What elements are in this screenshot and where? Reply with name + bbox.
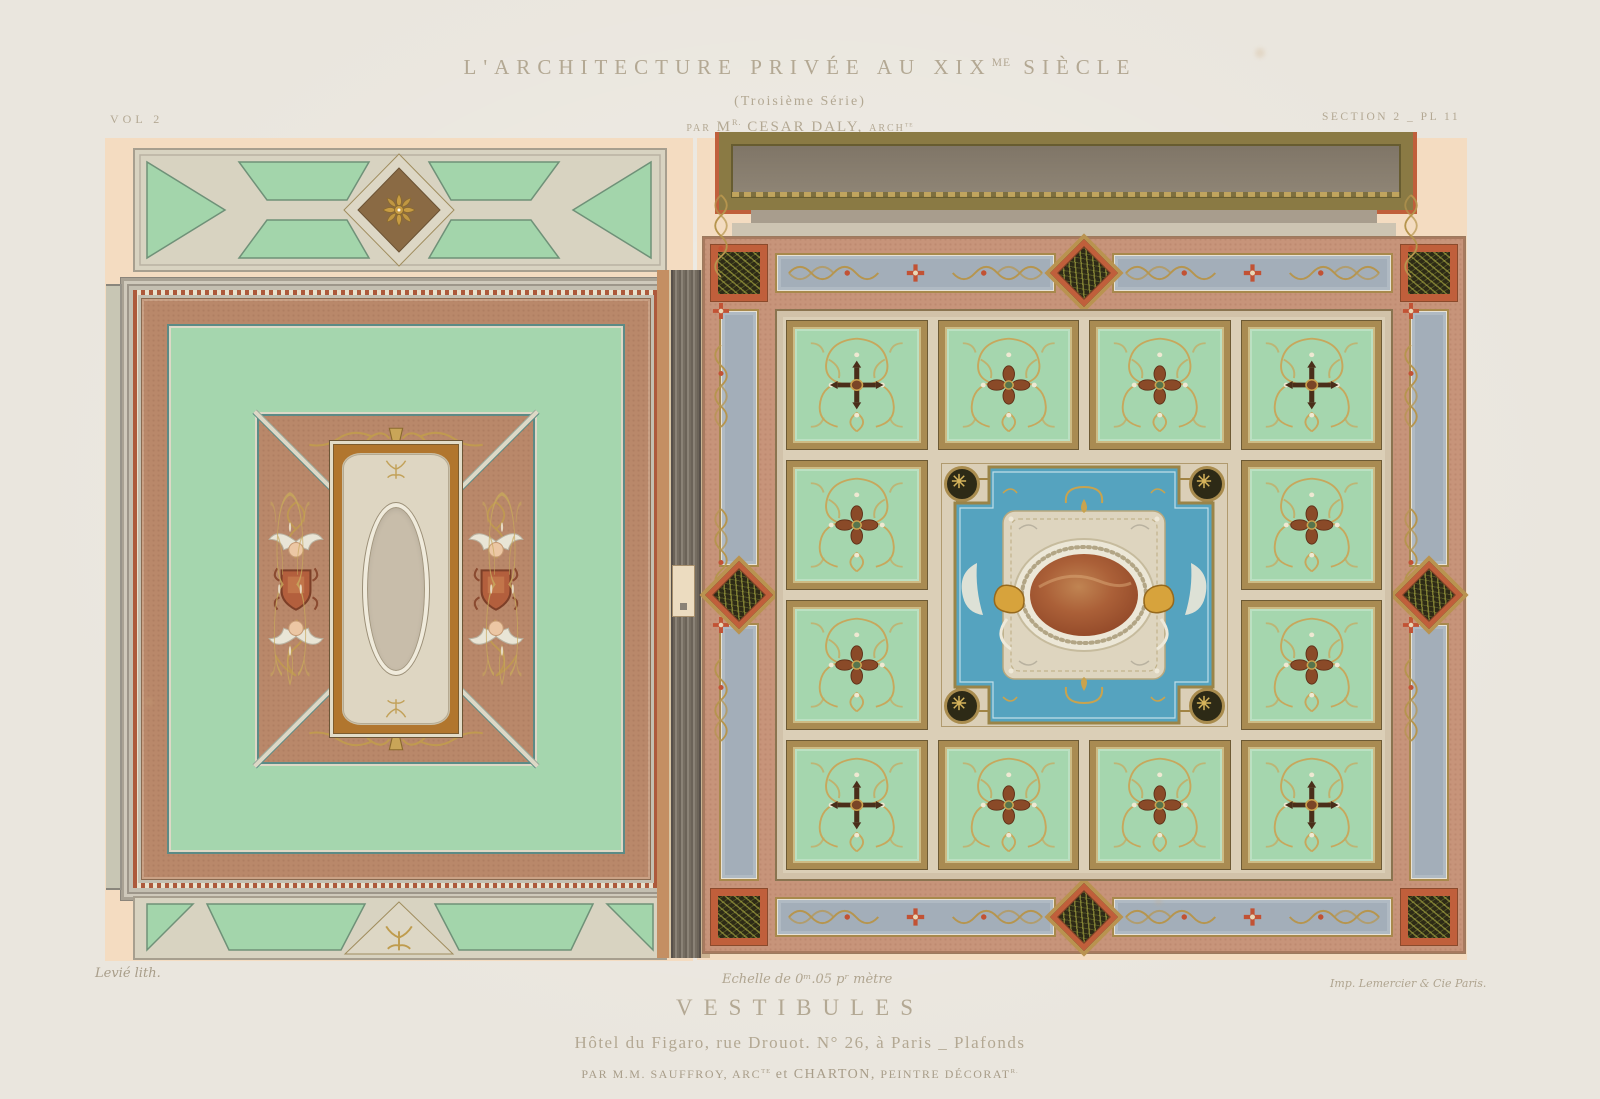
lithographer-credit: Levié lith.: [95, 966, 161, 981]
coffer-cross: [787, 321, 927, 449]
beam-key-block: [673, 566, 694, 616]
left-ceiling-top-strip: [133, 148, 667, 272]
foxing-spot: [1255, 48, 1265, 58]
plate-title-sup: ME: [992, 57, 1011, 69]
right-panel-inner-field: [775, 309, 1393, 881]
band-arabesque-ornament: [779, 257, 1052, 289]
lithograph-plate: VOL 2 L'ARCHITECTURE PRIVÉE AU XIXME SIÈ…: [0, 0, 1600, 1099]
right-ceiling-panel: [703, 237, 1465, 953]
center-medallion: [919, 459, 1249, 731]
coffer-ornament: [1096, 327, 1224, 443]
rosette-icon: [383, 194, 415, 226]
arabesque-band-panel: [1409, 623, 1449, 881]
coffer-ornament: [793, 607, 921, 723]
corner-marble-block: [711, 889, 767, 945]
band-arabesque-ornament: [1116, 901, 1389, 933]
coffer-cross: [787, 741, 927, 869]
left-panel-inner-field: [255, 412, 537, 766]
center-cartouche-panel: [330, 441, 462, 737]
right-ceiling-top-panel: [715, 132, 1417, 214]
coffer-quatrefoil: [939, 741, 1079, 869]
scale-note: Echelle de 0ᵐ.05 pʳ mètre: [722, 972, 892, 987]
credit-arch: ARCTE: [732, 1067, 771, 1081]
coffer-quatrefoil: [1090, 321, 1230, 449]
coffer-cross: [1242, 321, 1382, 449]
border-band-left: [719, 309, 759, 881]
byline-par: PAR: [686, 123, 711, 134]
plate-caption-subtitle: Hôtel du Figaro, rue Drouot. N° 26, à Pa…: [0, 1033, 1600, 1053]
coffer-grid: [787, 321, 1381, 869]
arabesque-band-panel: [775, 897, 1056, 937]
band-arabesque-ornament: [1396, 500, 1426, 750]
coffer-ornament: [793, 467, 921, 583]
gilt-dentil-band: [732, 192, 1400, 197]
section-label: SECTION 2 _ PL 11: [1322, 111, 1460, 123]
coffer-quatrefoil: [787, 601, 927, 729]
border-band-top: [775, 253, 1393, 293]
foxing-spot: [1155, 898, 1162, 905]
cream-cartouche: [343, 454, 449, 724]
plate-subtitle: (Troisième Série): [0, 94, 1600, 110]
arabesque-band-panel: [1112, 897, 1393, 937]
band-arabesque-ornament: [779, 901, 1052, 933]
coffer-ornament: [945, 327, 1073, 443]
left-ceiling-edge-molding: [106, 284, 122, 890]
plate-title-main: L'ARCHITECTURE PRIVÉE AU XIX: [464, 55, 992, 79]
sprig-ornament: [375, 698, 417, 722]
sprig-ornament: [375, 456, 417, 480]
coffer-ornament: [945, 747, 1073, 863]
center-oval-medallion: [363, 503, 429, 675]
plate-title-tail: SIÈCLE: [1011, 55, 1136, 79]
coffer-quatrefoil: [1090, 741, 1230, 869]
coffer-quatrefoil: [939, 321, 1079, 449]
printer-credit: Imp. Lemercier & Cie Paris.: [1330, 977, 1486, 990]
plate-caption-credits: PAR M.M. SAUFFROY, ARCTE et CHARTON, PEI…: [0, 1067, 1600, 1083]
arabesque-band-panel: [1112, 253, 1393, 293]
band-arabesque-ornament: [706, 186, 736, 436]
coffer-quatrefoil: [787, 461, 927, 589]
center-medallion-panel: [941, 463, 1228, 727]
coffer-ornament: [1248, 327, 1376, 443]
coffer-ornament: [793, 327, 921, 443]
gold-foliage-ornament: [263, 470, 317, 708]
foxing-spot: [145, 698, 153, 706]
band-arabesque-ornament: [1116, 257, 1389, 289]
coffer-ornament: [1096, 747, 1224, 863]
arabesque-band-panel: [775, 253, 1056, 293]
coffer-ornament: [1248, 607, 1376, 723]
left-panel-brown-band: [141, 298, 651, 880]
band-diamond: [1050, 239, 1118, 307]
arabesque-band-panel: [719, 623, 759, 881]
artwork-area: [105, 138, 1467, 966]
plate-caption-title: VESTIBULES: [0, 995, 1600, 1021]
band-arabesque-ornament: [1396, 186, 1426, 436]
coffer-cross: [1242, 741, 1382, 869]
coffer-quatrefoil: [1242, 461, 1382, 589]
corner-marble-block: [1401, 889, 1457, 945]
coffer-quatrefoil: [1242, 601, 1382, 729]
border-band-bottom: [775, 897, 1393, 937]
left-ceiling-panel: [121, 278, 671, 900]
coffer-ornament: [793, 747, 921, 863]
band-arabesque-ornament: [706, 500, 736, 750]
left-panel-green-frame: [171, 328, 621, 850]
left-ceiling-bottom-strip: [133, 896, 667, 960]
band-diamond: [1050, 883, 1118, 951]
coffer-ornament: [1248, 747, 1376, 863]
gold-foliage-ornament: [475, 470, 529, 708]
border-band-right: [1409, 309, 1449, 881]
coffer-ornament: [1248, 467, 1376, 583]
credit-peintre: PEINTRE DÉCORATR.: [880, 1067, 1018, 1081]
plate-title: L'ARCHITECTURE PRIVÉE AU XIXME SIÈCLE: [0, 55, 1600, 80]
